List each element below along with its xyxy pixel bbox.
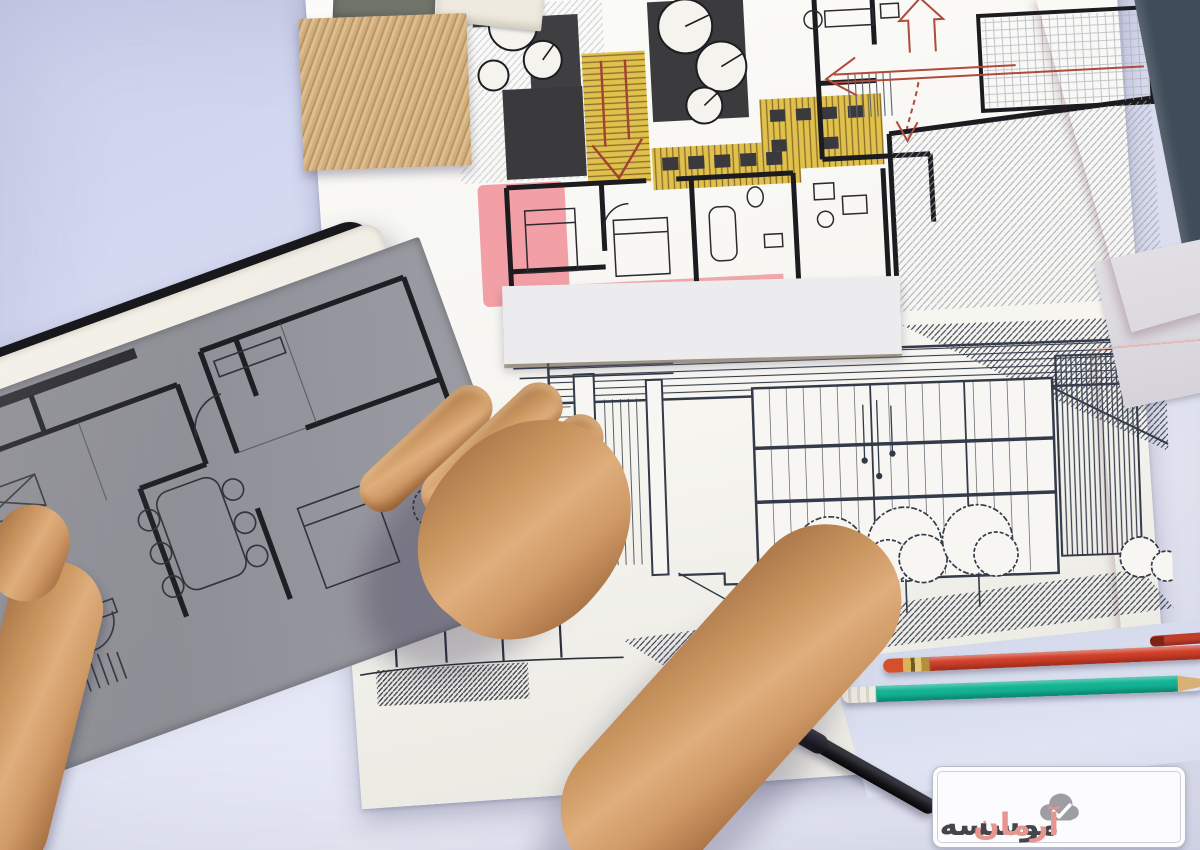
swatch: [508, 291, 510, 369]
designer-desk-photo: موسسه آرمان: [0, 0, 1200, 850]
pencil-wood-tip: [1178, 675, 1200, 692]
wood-sample: [298, 13, 471, 171]
swatch: [508, 291, 510, 369]
pencil-ferrule: [903, 657, 930, 672]
swatch: [508, 291, 510, 369]
watermark-text-accent: آرمان: [973, 807, 1059, 843]
swatch: [508, 291, 510, 369]
wood-grain: [298, 13, 471, 171]
pencil-lead: [1150, 636, 1165, 646]
swatch: [508, 291, 510, 369]
pencil-eraser: [883, 658, 904, 673]
swatch: [508, 291, 510, 369]
swatch: [508, 291, 510, 369]
watermark-badge: موسسه آرمان: [932, 766, 1186, 848]
swatch: [508, 291, 510, 369]
grayscale-swatch-card: [502, 276, 902, 364]
